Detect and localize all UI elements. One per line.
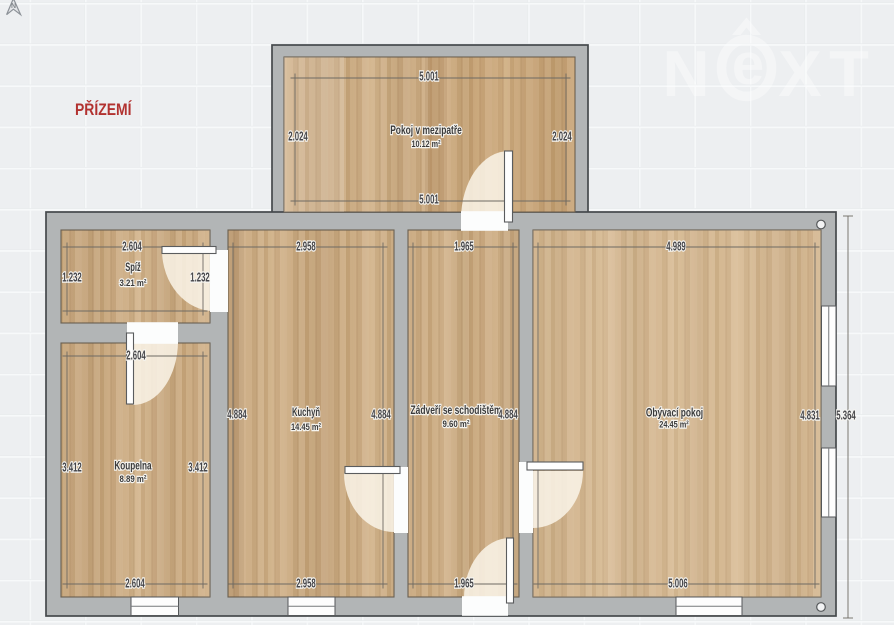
svg-text:9.60 m²: 9.60 m² xyxy=(443,419,470,430)
svg-text:e: e xyxy=(732,32,764,97)
svg-text:2.958: 2.958 xyxy=(296,240,315,254)
svg-text:1.232: 1.232 xyxy=(190,271,209,285)
svg-text:Spíž: Spíž xyxy=(125,260,141,274)
svg-text:2.958: 2.958 xyxy=(296,577,315,591)
svg-text:2.604: 2.604 xyxy=(125,577,144,591)
svg-text:3.412: 3.412 xyxy=(62,461,81,475)
svg-text:Pokoj v mezipatře: Pokoj v mezipatře xyxy=(390,123,462,137)
svg-text:Kuchyň: Kuchyň xyxy=(292,405,320,419)
svg-text:N: N xyxy=(663,37,710,110)
svg-text:1.965: 1.965 xyxy=(454,240,473,254)
svg-text:4.884: 4.884 xyxy=(371,408,390,422)
svg-text:2.024: 2.024 xyxy=(288,130,307,144)
svg-text:4.831: 4.831 xyxy=(800,409,819,423)
svg-text:1.965: 1.965 xyxy=(454,577,473,591)
svg-text:1.232: 1.232 xyxy=(62,271,81,285)
svg-text:5.364: 5.364 xyxy=(836,409,855,423)
svg-text:3.21 m²: 3.21 m² xyxy=(120,278,147,289)
svg-text:Koupelna: Koupelna xyxy=(114,458,151,472)
svg-text:4.884: 4.884 xyxy=(498,408,517,422)
svg-text:5.006: 5.006 xyxy=(668,577,687,591)
svg-text:Obývací pokoj: Obývací pokoj xyxy=(646,405,703,419)
svg-text:N: N xyxy=(11,3,16,10)
svg-text:PŘÍZEMÍ: PŘÍZEMÍ xyxy=(75,100,132,119)
svg-text:4.989: 4.989 xyxy=(666,240,685,254)
svg-text:Zádveří se schodištěm: Zádveří se schodištěm xyxy=(411,403,502,417)
svg-text:5.001: 5.001 xyxy=(419,70,438,84)
svg-text:24.45 m²: 24.45 m² xyxy=(659,419,689,430)
svg-text:14.45 m²: 14.45 m² xyxy=(291,422,321,433)
svg-text:8.89 m²: 8.89 m² xyxy=(120,474,147,485)
svg-text:3.412: 3.412 xyxy=(188,461,207,475)
svg-text:2.024: 2.024 xyxy=(552,130,571,144)
svg-text:10.12 m²: 10.12 m² xyxy=(412,139,441,150)
svg-text:T: T xyxy=(829,37,869,110)
svg-text:5.001: 5.001 xyxy=(419,193,438,207)
svg-text:4.884: 4.884 xyxy=(227,408,246,422)
svg-text:X: X xyxy=(778,37,821,110)
svg-text:2.604: 2.604 xyxy=(122,240,141,254)
svg-text:2.604: 2.604 xyxy=(126,349,145,363)
